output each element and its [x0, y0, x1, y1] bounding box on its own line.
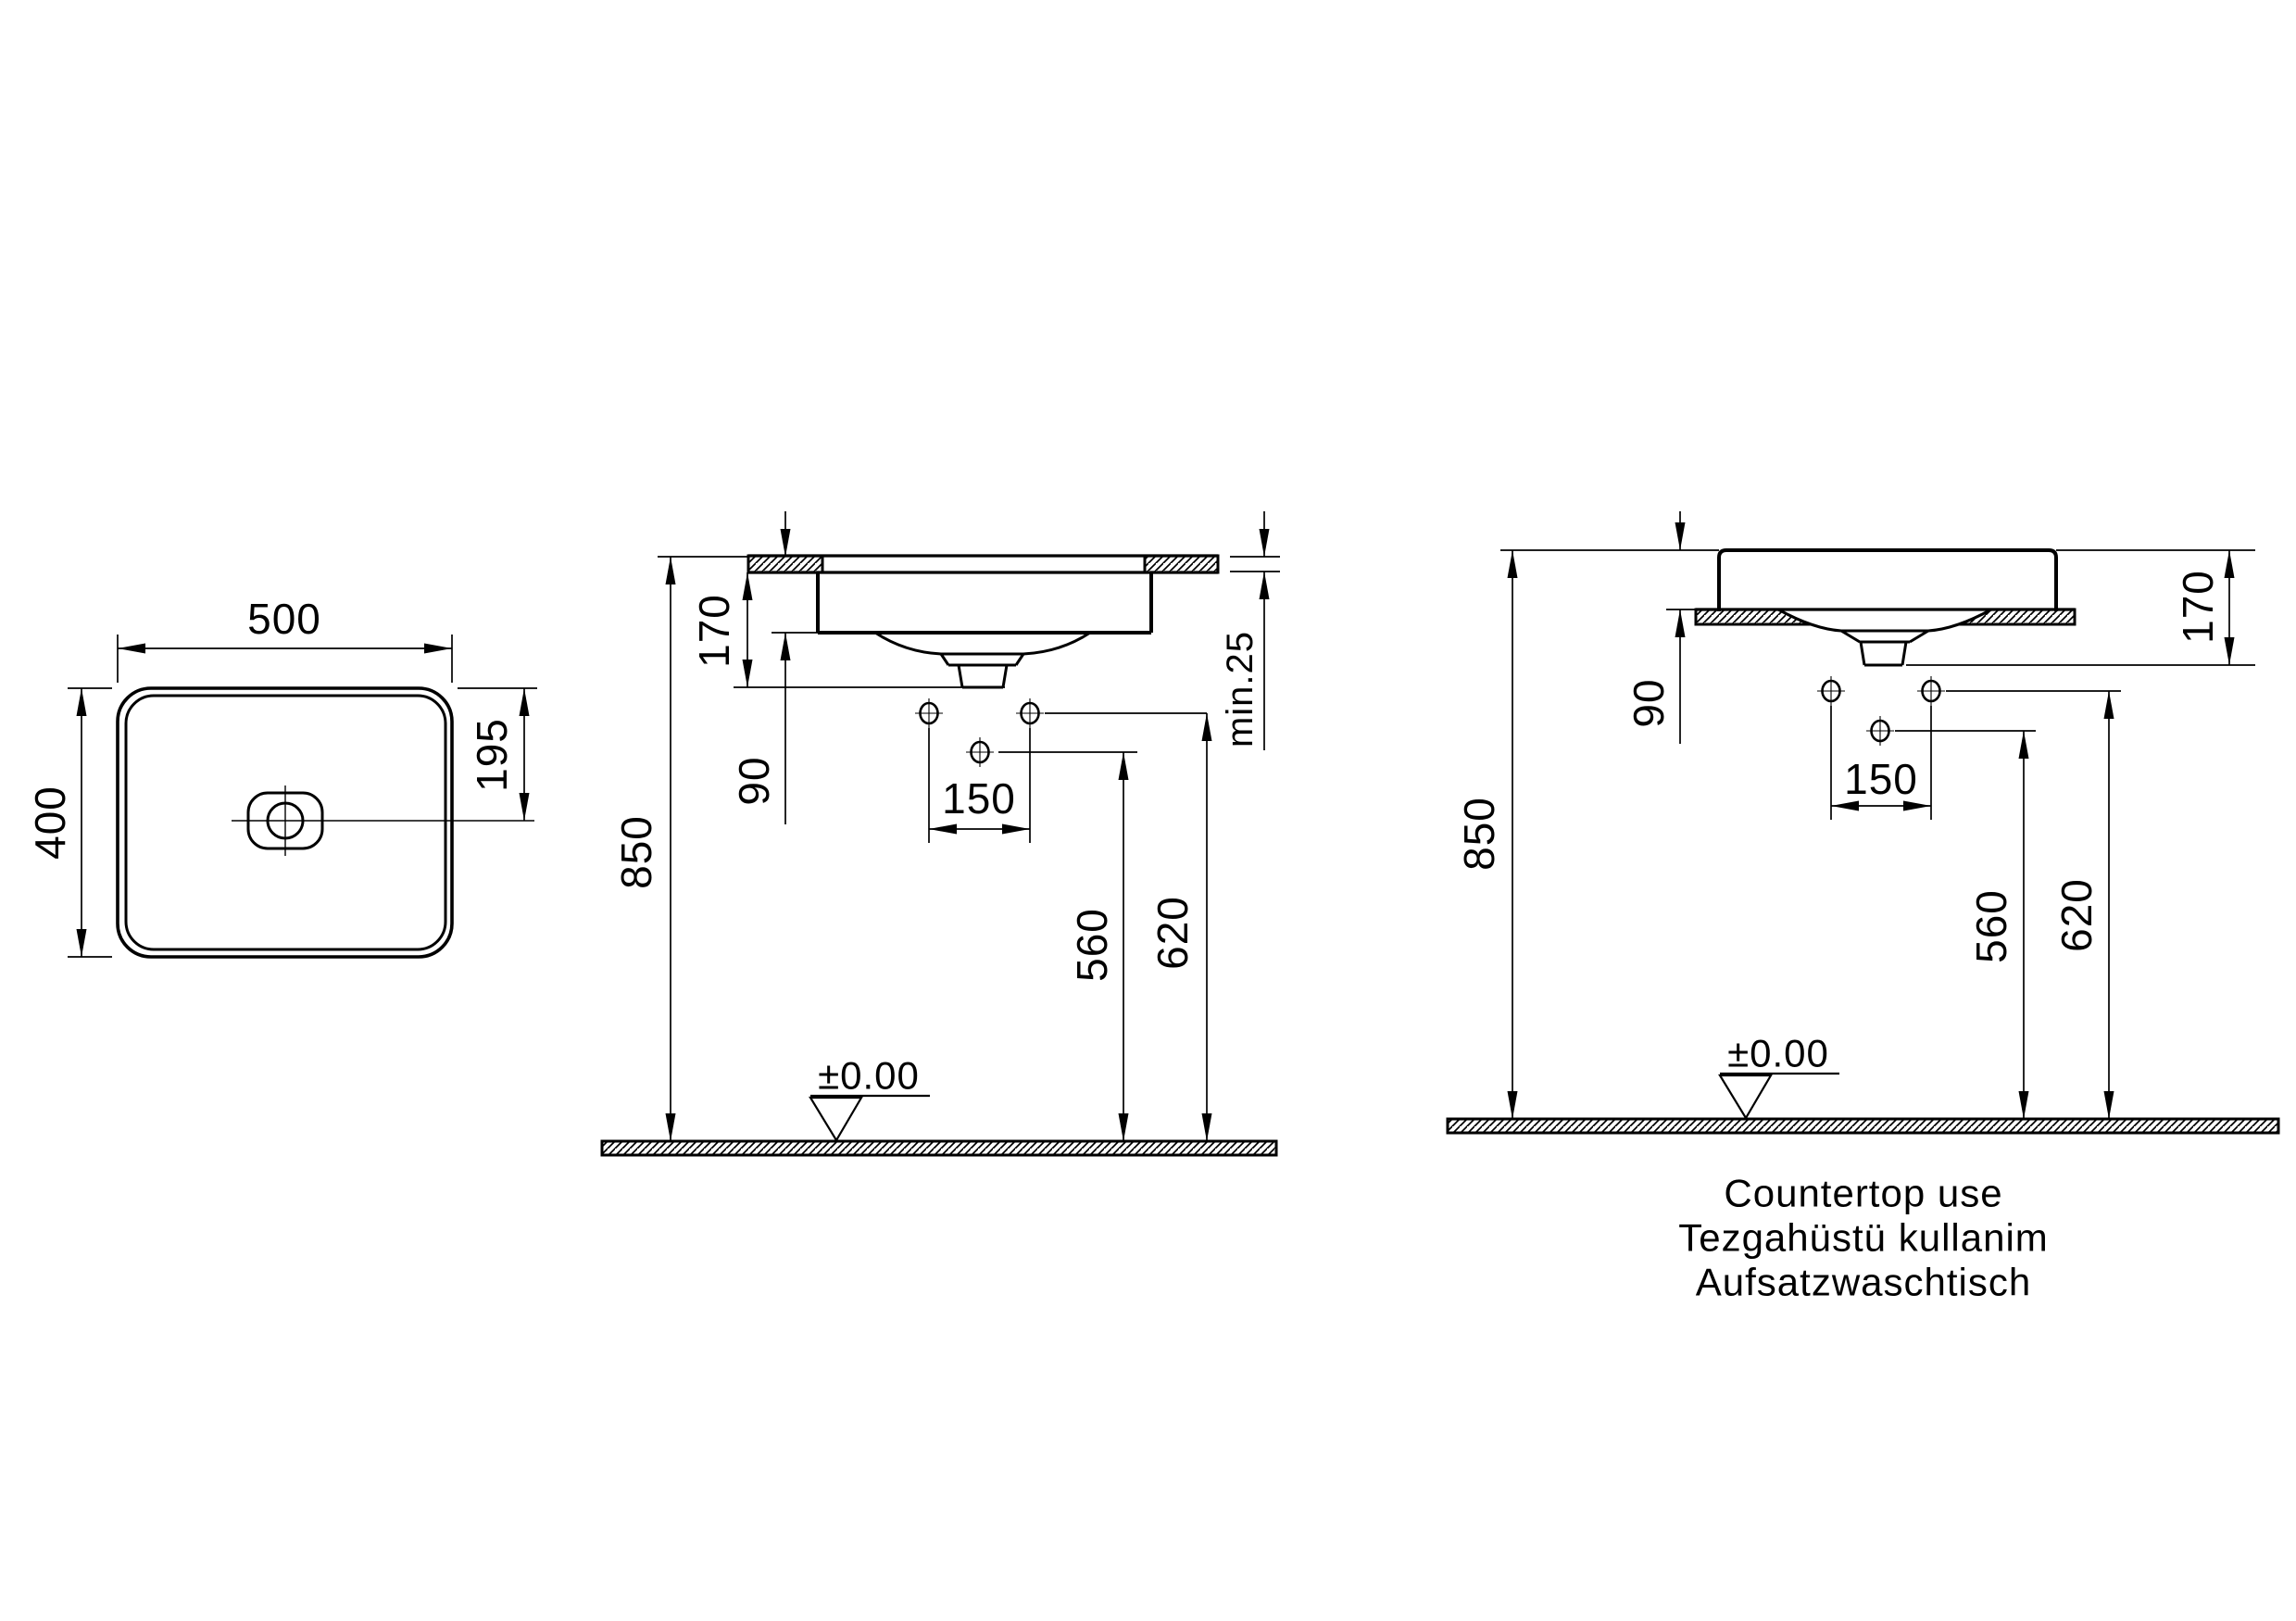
caption-line-en: Countertop use	[1724, 1172, 2002, 1215]
countertop-left-section	[748, 556, 822, 572]
basin-body-above-counter	[1719, 550, 2056, 611]
counter-mid-hole-height-label: 560	[1967, 889, 2015, 963]
washbasin-installation-drawing: 500 400 195	[0, 0, 2296, 1621]
dim-plan-depth: 400	[26, 688, 112, 957]
counter-basin-height-label: 170	[2174, 570, 2222, 644]
semi-side-holes-height-label: 620	[1148, 896, 1197, 970]
counter-side-holes-height-label: 620	[2052, 878, 2101, 952]
semi-datum-label: ±0.00	[818, 1054, 920, 1098]
semi-floor-line	[602, 1141, 1276, 1155]
dim-counter-thickness: min.25	[1220, 511, 1280, 750]
semi-rim-height-label: 850	[612, 815, 660, 889]
dim-plan-width: 500	[118, 595, 452, 683]
counter-rim-height-label: 850	[1455, 797, 1503, 871]
plan-depth-label: 400	[26, 785, 74, 860]
semi-hole-offset-label: 90	[730, 756, 778, 805]
dim-semi-side-holes-height: 620	[1148, 713, 1212, 1141]
dim-semi-basin-height: 170	[690, 572, 1005, 687]
dim-counter-side-holes-height: 620	[2052, 691, 2114, 1119]
caption-line-de: Aufsatzwaschtisch	[1696, 1261, 2031, 1304]
plan-width-label: 500	[247, 595, 321, 643]
dim-counter-basin-height: 170	[1906, 550, 2255, 665]
basin-body-section	[818, 572, 1151, 654]
semi-mid-hole-height-label: 560	[1068, 908, 1116, 982]
technical-drawing-page: 500 400 195	[0, 0, 2296, 1621]
countertop-right-section	[1145, 556, 1218, 572]
countertop-section	[1696, 609, 2075, 631]
counter-floor-datum: ±0.00	[1720, 1032, 1839, 1119]
dim-counter-above-counter: 90	[1625, 511, 1696, 744]
semi-tap-spacing-label: 150	[942, 774, 1016, 823]
countertop-view: 150 90 170 850	[1448, 511, 2278, 1304]
dim-counter-mid-hole-height: 560	[1967, 731, 2029, 1119]
tap-holes-countertop	[1817, 676, 2121, 746]
drain-outlet-countertop	[1841, 631, 1928, 665]
semi-basin-height-label: 170	[690, 594, 738, 668]
counter-floor-line	[1448, 1119, 2278, 1133]
plan-drain-offset-label: 195	[468, 718, 516, 792]
counter-datum-label: ±0.00	[1727, 1032, 1829, 1075]
dim-plan-drain-offset: 195	[458, 688, 537, 821]
plan-view: 500 400 195	[26, 595, 537, 957]
drain-outlet	[941, 654, 1023, 687]
dim-semi-mid-hole-height: 560	[1068, 752, 1129, 1141]
drain-plan	[232, 785, 534, 856]
caption-line-tr: Tezgahüstü kullanim	[1678, 1216, 2049, 1260]
view-caption: Countertop use Tezgahüstü kullanim Aufsa…	[1678, 1172, 2049, 1304]
counter-above-counter-label: 90	[1625, 678, 1673, 727]
semi-floor-datum: ±0.00	[810, 1054, 930, 1141]
tap-holes	[915, 698, 1207, 767]
counter-thickness-label: min.25	[1220, 631, 1261, 748]
counter-tap-spacing-label: 150	[1844, 755, 1918, 803]
dim-counter-rim-height: 850	[1455, 550, 1518, 1119]
semi-recessed-view: 150 90 170 min.25	[602, 511, 1280, 1155]
dim-counter-tap-spacing: 150	[1831, 706, 1931, 820]
